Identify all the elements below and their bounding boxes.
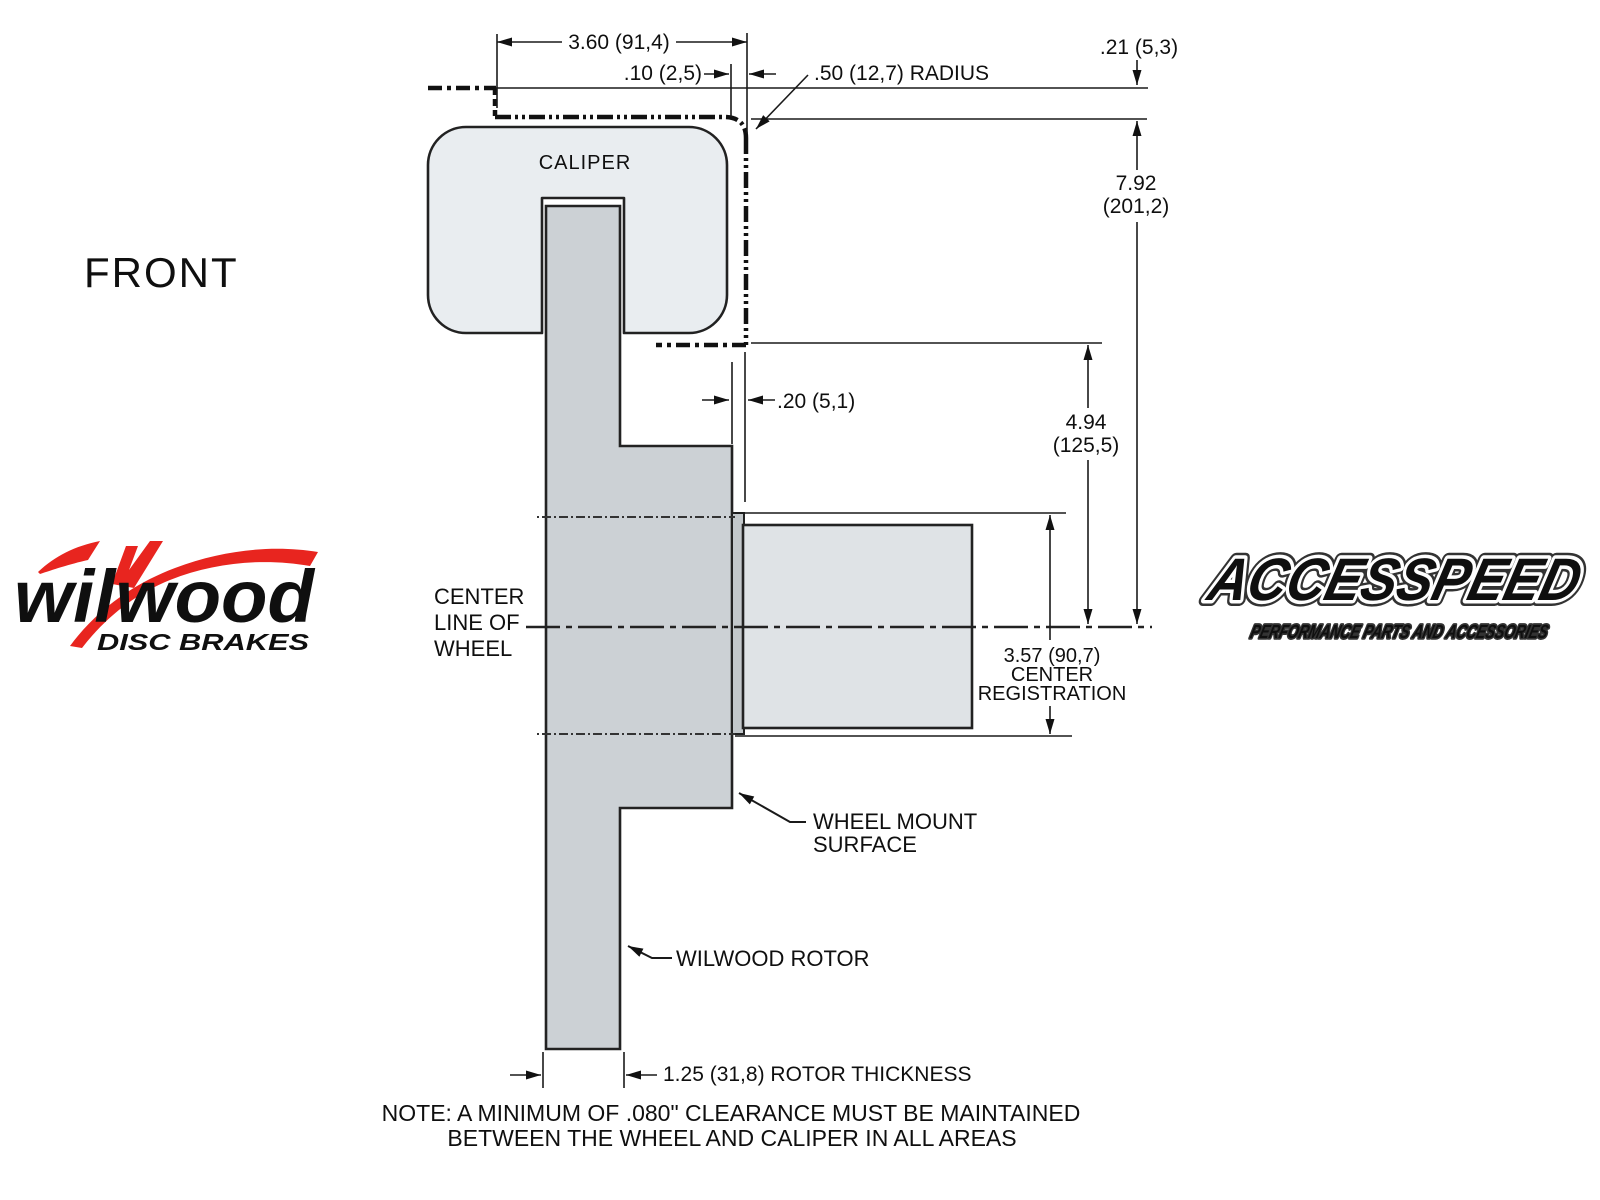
wheel-corner-radius <box>726 117 746 138</box>
accesspeed-wordmark: ACCESSPEED <box>1200 546 1588 613</box>
callout-wheel-mount-surface: WHEEL MOUNT SURFACE <box>739 793 977 857</box>
wheel-mount-label-l2: SURFACE <box>813 832 917 857</box>
dim-10-label: .10 (2,5) <box>624 62 702 85</box>
dim-wheel-lip: .21 (5,3) <box>1100 36 1178 85</box>
dim-21-label: .21 (5,3) <box>1100 36 1178 59</box>
brake-clearance-diagram-page: CENTER LINE OF WHEEL 3.60 (91,4) .10 (2,… <box>0 0 1600 1200</box>
note-line1: NOTE: A MINIMUM OF .080" CLEARANCE MUST … <box>382 1100 1081 1126</box>
dim-caliper-top-to-centerline: 7.92 (201,2) <box>1103 121 1170 624</box>
clearance-note: NOTE: A MINIMUM OF .080" CLEARANCE MUST … <box>382 1100 1081 1151</box>
dim-792-label-in: 7.92 <box>1116 172 1157 195</box>
wilwood-wordmark: wilwood <box>14 555 316 638</box>
center-line-label-l2: LINE OF <box>434 610 520 635</box>
dim-50-leader <box>756 75 808 129</box>
rotor-leader <box>628 946 672 958</box>
dim-125-label: 1.25 (31,8) ROTOR THICKNESS <box>663 1063 972 1086</box>
center-line-label-l1: CENTER <box>434 584 524 609</box>
dim-rotor-thickness: 1.25 (31,8) ROTOR THICKNESS <box>510 1052 972 1088</box>
dim-494-label-in: 4.94 <box>1066 411 1107 434</box>
caliper-label: CALIPER <box>539 152 632 174</box>
view-label-front: FRONT <box>84 249 239 296</box>
dim-caliper-to-wheel-gap: .10 (2,5) <box>624 62 776 117</box>
wilwood-tagline: DISC BRAKES <box>97 629 310 655</box>
center-line-label: CENTER LINE OF WHEEL <box>434 584 524 661</box>
note-line2: BETWEEN THE WHEEL AND CALIPER IN ALL ARE… <box>447 1125 1016 1151</box>
brake-clearance-diagram: CENTER LINE OF WHEEL 3.60 (91,4) .10 (2,… <box>0 0 1600 1200</box>
dim-357-label-l3: REGISTRATION <box>978 683 1127 705</box>
dim-50-label: .50 (12,7) RADIUS <box>814 62 989 85</box>
wilwood-logo: wilwood DISC BRAKES <box>14 541 318 655</box>
dim-20-label: .20 (5,1) <box>777 390 855 413</box>
center-line-label-l3: WHEEL <box>434 636 512 661</box>
accesspeed-logo: ACCESSPEED ACCESSPEED ACCESSPEED ACCESSP… <box>1193 546 1592 643</box>
wheel-mount-leader <box>739 793 806 822</box>
dim-792-label-mm: (201,2) <box>1103 195 1170 218</box>
dim-360-label: 3.60 (91,4) <box>568 31 670 54</box>
rotor-label: WILWOOD ROTOR <box>676 946 870 971</box>
dim-494-label-mm: (125,5) <box>1053 434 1120 457</box>
accesspeed-tagline: PERFORMANCE PARTS AND ACCESSORIES <box>1248 622 1550 643</box>
wheel-mount-label-l1: WHEEL MOUNT <box>813 809 977 834</box>
callout-wilwood-rotor: WILWOOD ROTOR <box>628 946 870 971</box>
